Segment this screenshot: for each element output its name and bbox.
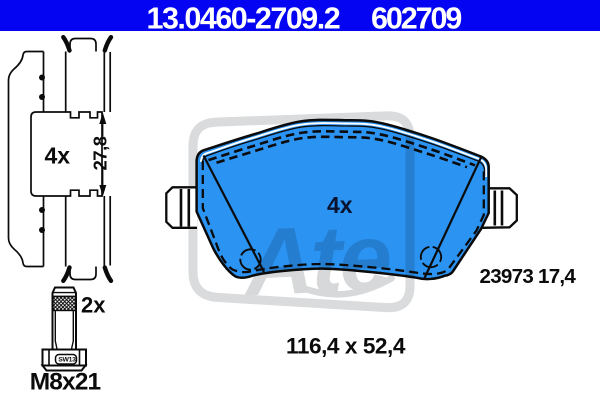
svg-text:2x: 2x: [81, 293, 106, 318]
svg-text:116,4 x 52,4: 116,4 x 52,4: [286, 334, 406, 359]
svg-text:4x: 4x: [45, 143, 71, 169]
svg-text:27,8: 27,8: [89, 136, 110, 170]
svg-text:4x: 4x: [327, 192, 353, 218]
svg-text:602709: 602709: [371, 2, 461, 36]
svg-text:23973 17,4: 23973 17,4: [480, 265, 577, 288]
svg-text:M8x21: M8x21: [30, 369, 101, 396]
svg-text:SW13: SW13: [58, 356, 76, 363]
svg-text:13.0460-2709.2: 13.0460-2709.2: [147, 2, 340, 36]
